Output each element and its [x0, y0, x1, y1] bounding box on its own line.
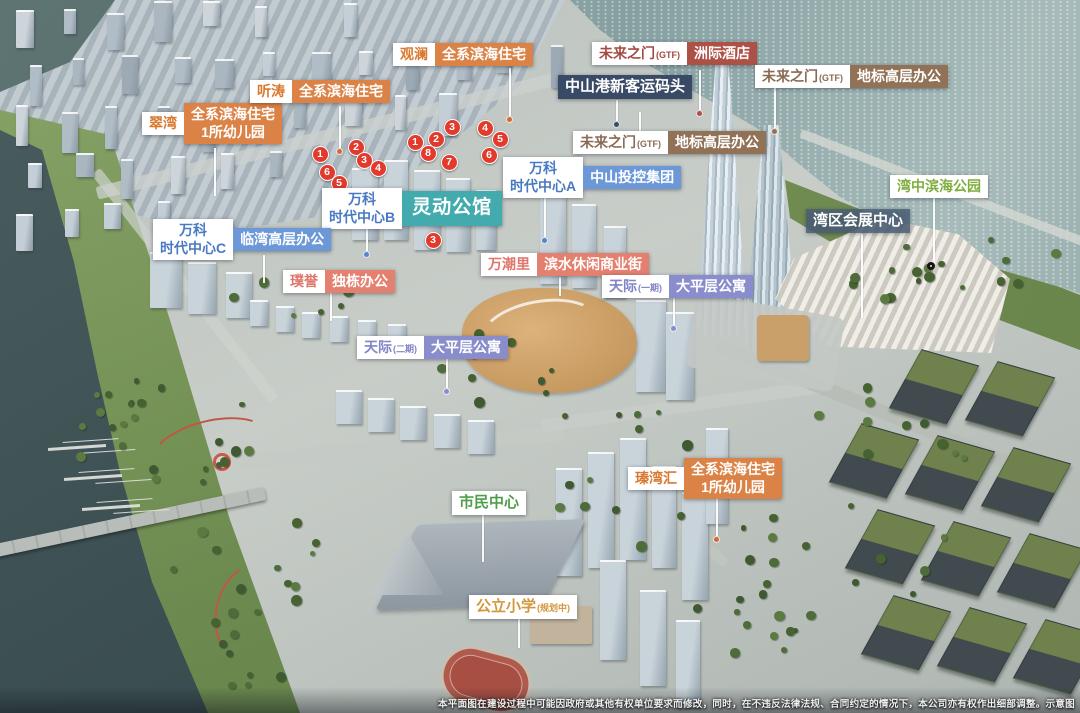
- green-roof-office-block: [829, 423, 920, 499]
- building-block: [76, 153, 94, 177]
- tower-block: [588, 452, 614, 568]
- label-zhenwanhui-desc: 全系滨海住宅1所幼儿园: [684, 458, 782, 499]
- tree: [781, 647, 787, 653]
- tree: [634, 411, 641, 418]
- tree: [850, 273, 860, 283]
- tree: [988, 237, 994, 243]
- building-dot-marker: [613, 121, 620, 128]
- label-tingtao-name: 听涛: [250, 80, 292, 103]
- leader-line: [518, 616, 520, 648]
- tree: [910, 591, 916, 597]
- tree: [693, 604, 702, 613]
- label-guanlan-desc: 全系滨海住宅: [435, 43, 533, 66]
- tree: [924, 272, 935, 283]
- building-dot-marker: [363, 251, 370, 258]
- tower-block: [330, 316, 348, 342]
- unit-marker-6: 6: [481, 147, 498, 164]
- label-guanlan-name: 观澜: [393, 43, 435, 66]
- label-future-gate-lower-name: 未来之门(GTF): [573, 131, 668, 154]
- label-vanke-c-desc: 临湾高层办公: [233, 228, 331, 251]
- tower-block: [250, 300, 268, 326]
- masterplan-map: 翠湾 全系滨海住宅1所幼儿园 听涛 全系滨海住宅 观澜 全系滨海住宅 中山港新客…: [0, 0, 1080, 713]
- tree: [226, 650, 233, 657]
- label-tianji-2: 天际(二期) 大平层公寓: [357, 336, 508, 359]
- tree: [244, 446, 254, 456]
- building-dot-marker: [771, 128, 778, 135]
- building-block: [359, 51, 373, 75]
- label-zhenwanhui-name: 瑧湾汇: [628, 467, 684, 490]
- leader-line: [339, 106, 341, 148]
- label-vanke-a: 万科时代中心A 中山投控集团: [503, 157, 681, 198]
- building-block: [203, 1, 221, 26]
- tree: [677, 512, 685, 520]
- tower-block: [640, 590, 666, 686]
- label-vanke-b-desc: 灵动公馆: [402, 191, 502, 226]
- tower-block: [336, 390, 362, 424]
- tower-block: [468, 420, 494, 454]
- label-vanke-a-desc: 中山投控集团: [583, 166, 681, 189]
- tower-block: [600, 560, 626, 660]
- label-vanke-b: 万科时代中心B 灵动公馆: [322, 188, 502, 229]
- building-block: [107, 13, 124, 50]
- tree: [814, 411, 824, 421]
- tree: [543, 390, 549, 396]
- label-future-gate-right-name: 未来之门(GTF): [755, 65, 850, 88]
- building-block: [105, 106, 117, 148]
- label-civic-center-name: 市民中心: [452, 491, 526, 515]
- tree: [863, 449, 873, 459]
- tree: [236, 584, 246, 594]
- building-dot-marker: [443, 388, 450, 395]
- label-future-gate-hotel: 未来之门(GTF) 洲际酒店: [592, 42, 757, 65]
- label-tingtao: 听涛 全系滨海住宅: [250, 80, 390, 103]
- label-public-school-name: 公立小学(规划中): [469, 595, 577, 619]
- building-block: [175, 57, 191, 83]
- label-tingtao-desc: 全系滨海住宅: [292, 80, 390, 103]
- tree: [291, 595, 302, 606]
- tree: [211, 618, 220, 627]
- green-roof-office-block: [937, 607, 1028, 683]
- tower-block: [302, 312, 320, 338]
- building-block: [62, 112, 78, 153]
- label-future-gate-right-desc: 地标高层办公: [850, 65, 948, 88]
- label-wanchaoli: 万潮里 滨水休闲商业街: [481, 253, 649, 276]
- unit-marker-5: 5: [492, 131, 509, 148]
- tree: [587, 477, 593, 483]
- tree: [468, 374, 476, 382]
- tree: [865, 397, 875, 407]
- building-block: [171, 156, 185, 194]
- tree: [863, 383, 873, 393]
- label-expo-center: 湾区会展中心: [806, 209, 910, 233]
- building-block: [121, 159, 134, 199]
- retail-podium: [757, 315, 809, 361]
- tree: [743, 621, 751, 629]
- tree: [863, 417, 872, 426]
- tree: [338, 303, 344, 309]
- label-bay-park-name: 湾中滨海公园: [890, 175, 988, 198]
- leader-line: [699, 70, 701, 110]
- tree: [549, 368, 554, 373]
- tree: [158, 384, 165, 391]
- tree: [555, 503, 564, 512]
- tree: [952, 450, 958, 456]
- building-block: [104, 203, 121, 229]
- leader-line: [509, 68, 511, 116]
- tree: [318, 309, 324, 315]
- tree: [229, 293, 239, 303]
- label-vanke-a-name: 万科时代中心A: [503, 157, 583, 198]
- green-roof-office-block: [965, 361, 1056, 437]
- leader-line: [544, 193, 546, 237]
- tree: [215, 438, 223, 446]
- tree: [120, 421, 126, 427]
- label-puyu: 璞誉 独栋办公: [283, 270, 395, 293]
- building-block: [255, 6, 267, 37]
- park-dot-marker: [927, 262, 935, 270]
- unit-marker-7: 7: [441, 154, 458, 171]
- label-tianji-2-desc: 大平层公寓: [424, 336, 508, 359]
- tree: [941, 534, 947, 540]
- tree: [310, 551, 315, 556]
- building-block: [65, 209, 78, 236]
- tree: [128, 401, 134, 407]
- label-puyu-name: 璞誉: [283, 270, 325, 293]
- building-block: [73, 58, 84, 85]
- building-dot-marker: [541, 237, 548, 244]
- label-tianji-2-name: 天际(二期): [357, 336, 424, 359]
- building-block: [30, 65, 42, 106]
- label-future-gate-hotel-name: 未来之门(GTF): [592, 42, 687, 65]
- building-dot-marker: [336, 148, 343, 155]
- tower-block: [368, 398, 394, 432]
- building-dot-marker: [670, 325, 677, 332]
- tree: [759, 590, 768, 599]
- leader-line: [330, 291, 332, 321]
- leader-line: [716, 498, 718, 536]
- building-block: [270, 151, 281, 176]
- tree: [997, 277, 1005, 285]
- green-roof-office-block: [861, 595, 952, 671]
- unit-marker-3: 3: [444, 119, 461, 136]
- label-cuiwan: 翠湾 全系滨海住宅1所幼儿园: [142, 103, 282, 144]
- label-cuiwan-desc: 全系滨海住宅1所幼儿园: [184, 103, 282, 144]
- tree: [938, 261, 944, 267]
- tower-block: [400, 406, 426, 440]
- tree: [806, 611, 815, 620]
- tree: [612, 506, 620, 514]
- tree: [134, 378, 139, 383]
- building-block: [64, 9, 76, 34]
- label-future-gate-lower: 未来之门(GTF) 地标高层办公: [573, 131, 766, 154]
- label-future-gate-hotel-desc: 洲际酒店: [687, 42, 757, 65]
- tree: [770, 632, 778, 640]
- tree: [131, 414, 138, 421]
- leader-line: [673, 296, 675, 325]
- tree: [852, 579, 859, 586]
- tree: [228, 608, 238, 618]
- label-future-gate-right: 未来之门(GTF) 地标高层办公: [755, 65, 948, 88]
- leader-line: [861, 234, 863, 318]
- tree: [197, 527, 207, 537]
- tree: [745, 555, 755, 565]
- tree: [682, 440, 693, 451]
- building-dot-marker: [696, 110, 703, 117]
- label-cuiwan-name: 翠湾: [142, 112, 184, 135]
- label-port: 中山港新客运码头: [558, 75, 692, 99]
- tree: [734, 609, 739, 614]
- tree: [212, 546, 221, 555]
- building-block: [122, 55, 138, 94]
- label-public-school: 公立小学(规划中): [469, 595, 577, 619]
- label-port-name: 中山港新客运码头: [558, 75, 692, 99]
- tree: [786, 627, 794, 635]
- tree: [312, 539, 320, 547]
- label-wanchaoli-desc: 滨水休闲商业街: [537, 253, 649, 276]
- leader-line: [446, 357, 448, 388]
- unit-marker-3: 3: [425, 232, 442, 249]
- label-vanke-c-name: 万科时代中心C: [153, 219, 233, 260]
- tree: [616, 412, 622, 418]
- tree: [768, 533, 777, 542]
- label-expo-center-name: 湾区会展中心: [806, 209, 910, 233]
- tree: [636, 541, 646, 551]
- green-roof-office-block: [997, 533, 1080, 609]
- leader-line: [482, 514, 484, 562]
- green-roof-office-block: [921, 521, 1012, 597]
- label-future-gate-lower-desc: 地标高层办公: [668, 131, 766, 154]
- label-vanke-b-name: 万科时代中心B: [322, 188, 402, 229]
- building-block: [16, 214, 32, 251]
- tree: [802, 542, 810, 550]
- tree: [769, 514, 778, 523]
- tree: [1013, 279, 1022, 288]
- tree: [474, 397, 485, 408]
- label-zhenwanhui: 瑧湾汇 全系滨海住宅1所幼儿园: [628, 458, 782, 499]
- leader-line: [366, 228, 368, 251]
- leader-line: [616, 100, 618, 121]
- tree: [580, 502, 589, 511]
- tree: [774, 611, 784, 621]
- tree: [1051, 249, 1060, 258]
- tree: [79, 423, 86, 430]
- disclaimer-text: 本平面图在建设过程中可能因政府或其他有权单位要求而修改，同时，在不违反法律法规、…: [438, 696, 1075, 710]
- label-tianji-1: 天际(一期) 大平层公寓: [602, 275, 753, 298]
- leader-line: [214, 148, 216, 196]
- tree: [880, 294, 890, 304]
- tree: [763, 580, 771, 588]
- label-puyu-desc: 独栋办公: [325, 270, 395, 293]
- tree: [220, 457, 229, 466]
- label-civic-center: 市民中心: [452, 491, 526, 515]
- unit-marker-4: 4: [477, 120, 494, 137]
- building-block: [395, 95, 407, 130]
- tree: [769, 558, 778, 567]
- tree: [507, 338, 515, 346]
- tree: [565, 481, 573, 489]
- label-wanchaoli-name: 万潮里: [481, 253, 537, 276]
- unit-marker-1: 1: [312, 146, 329, 163]
- tree: [902, 421, 911, 430]
- tree: [741, 525, 747, 531]
- label-vanke-c: 万科时代中心C 临湾高层办公: [153, 219, 331, 260]
- tree: [109, 424, 116, 431]
- tower-block: [682, 492, 708, 600]
- tower-block: [636, 300, 666, 392]
- tree: [203, 466, 209, 472]
- label-guanlan: 观澜 全系滨海住宅: [393, 43, 533, 66]
- building-block: [16, 10, 34, 48]
- unit-marker-8: 8: [420, 145, 437, 162]
- tree: [903, 244, 909, 250]
- building-block: [154, 1, 172, 42]
- tree: [219, 640, 227, 648]
- tree: [292, 518, 302, 528]
- label-tianji-1-name: 天际(一期): [602, 275, 669, 298]
- building-dot-marker: [713, 536, 720, 543]
- tower-block: [150, 252, 182, 308]
- label-bay-park: 湾中滨海公园: [890, 175, 988, 198]
- leader-line: [774, 87, 776, 128]
- tree: [247, 672, 253, 678]
- tower-block: [188, 262, 216, 314]
- building-block: [221, 153, 234, 189]
- tree: [635, 425, 643, 433]
- building-dot-marker: [506, 116, 513, 123]
- tower-block: [434, 414, 460, 448]
- label-tianji-1-desc: 大平层公寓: [669, 275, 753, 298]
- leader-line: [933, 194, 935, 261]
- tower-block: [276, 306, 294, 332]
- leader-line: [559, 277, 561, 296]
- leader-line: [639, 112, 641, 131]
- building-block: [344, 3, 357, 37]
- building-block: [215, 59, 234, 88]
- tree: [961, 455, 967, 461]
- building-block: [16, 105, 28, 146]
- building-block: [28, 163, 41, 188]
- unit-marker-4: 4: [370, 160, 387, 177]
- tree: [538, 377, 546, 385]
- tree: [889, 267, 895, 273]
- tree: [291, 313, 296, 318]
- tree: [937, 439, 947, 449]
- tree: [736, 596, 744, 604]
- building-block: [263, 52, 275, 77]
- tree: [848, 503, 854, 509]
- tree: [730, 648, 740, 658]
- tree: [239, 402, 245, 408]
